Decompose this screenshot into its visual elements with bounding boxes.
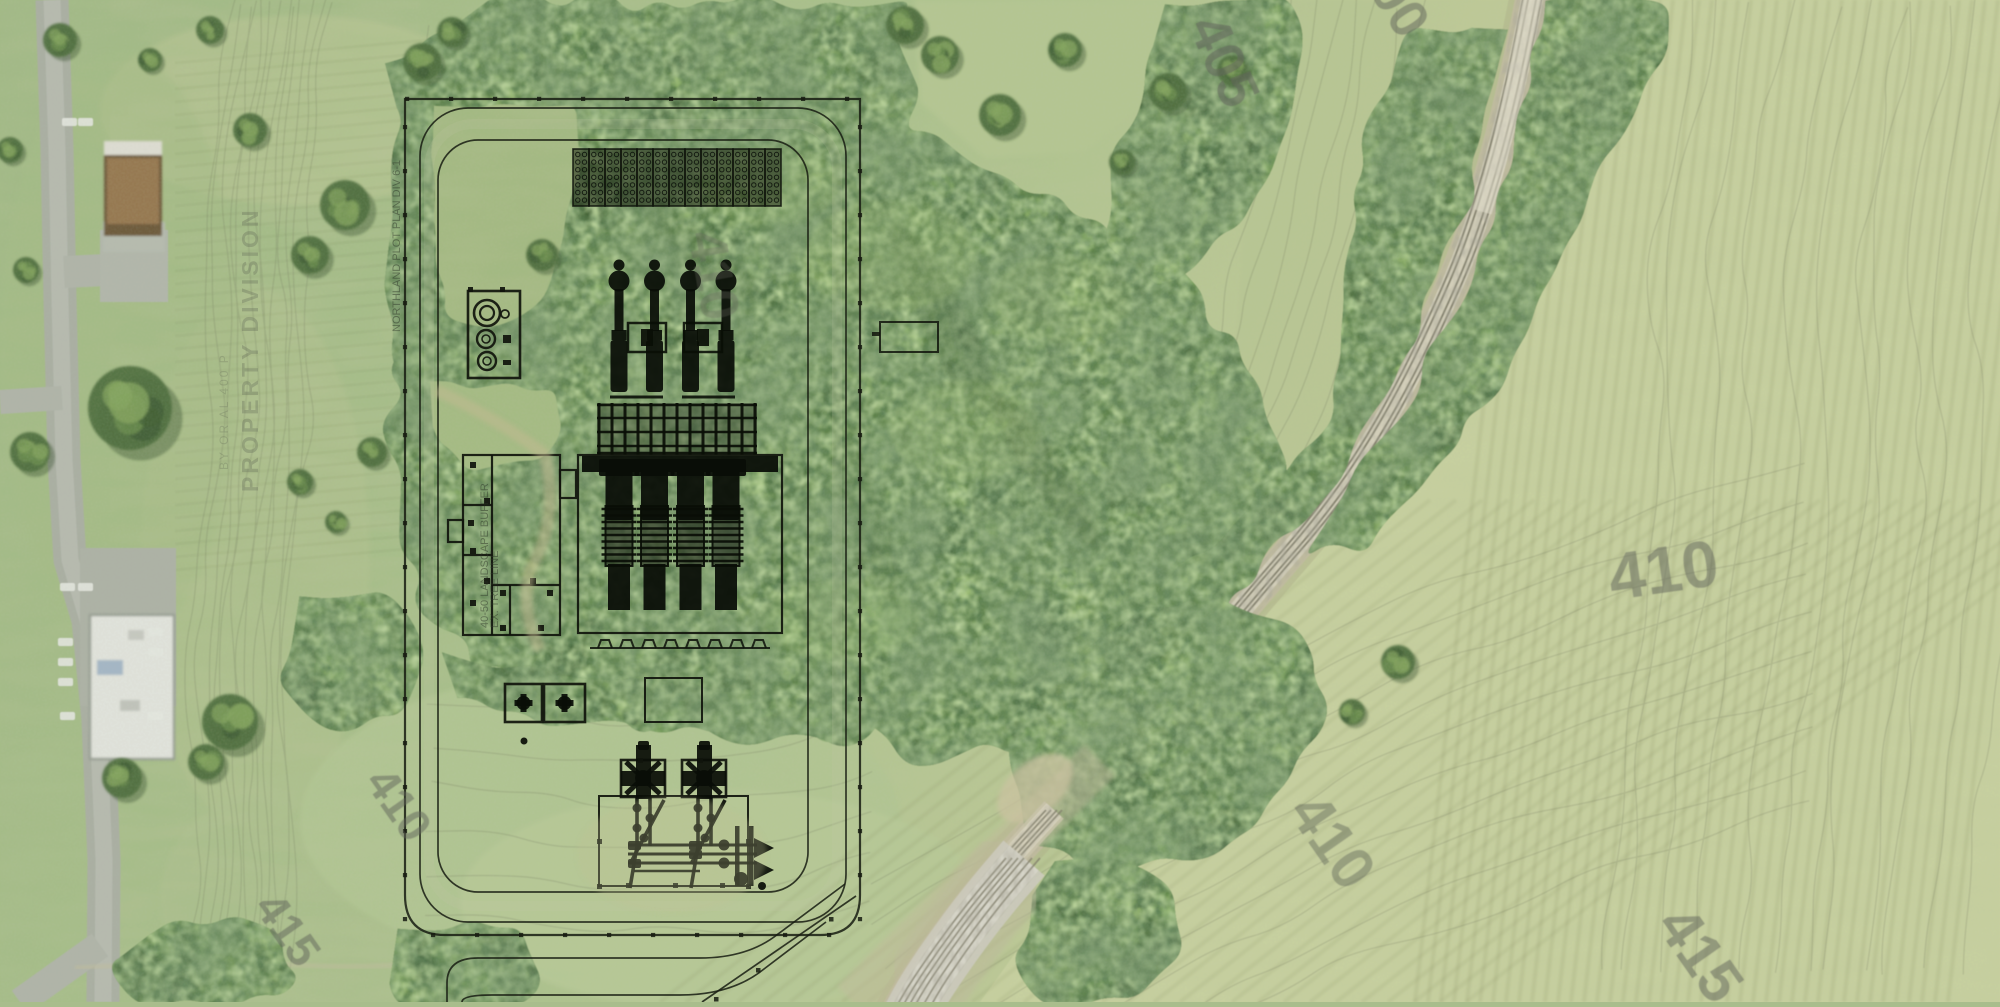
svg-text:BY OR AL 400 P: BY OR AL 400 P bbox=[217, 353, 231, 470]
svg-text:PROPERTY DIVISION: PROPERTY DIVISION bbox=[237, 208, 263, 492]
svg-text:NORTHLAND PLOT PLAN DIV 6-1: NORTHLAND PLOT PLAN DIV 6-1 bbox=[391, 160, 403, 332]
svg-text:410: 410 bbox=[1604, 525, 1723, 614]
svg-text:EX. TREE LINE: EX. TREE LINE bbox=[489, 551, 501, 628]
